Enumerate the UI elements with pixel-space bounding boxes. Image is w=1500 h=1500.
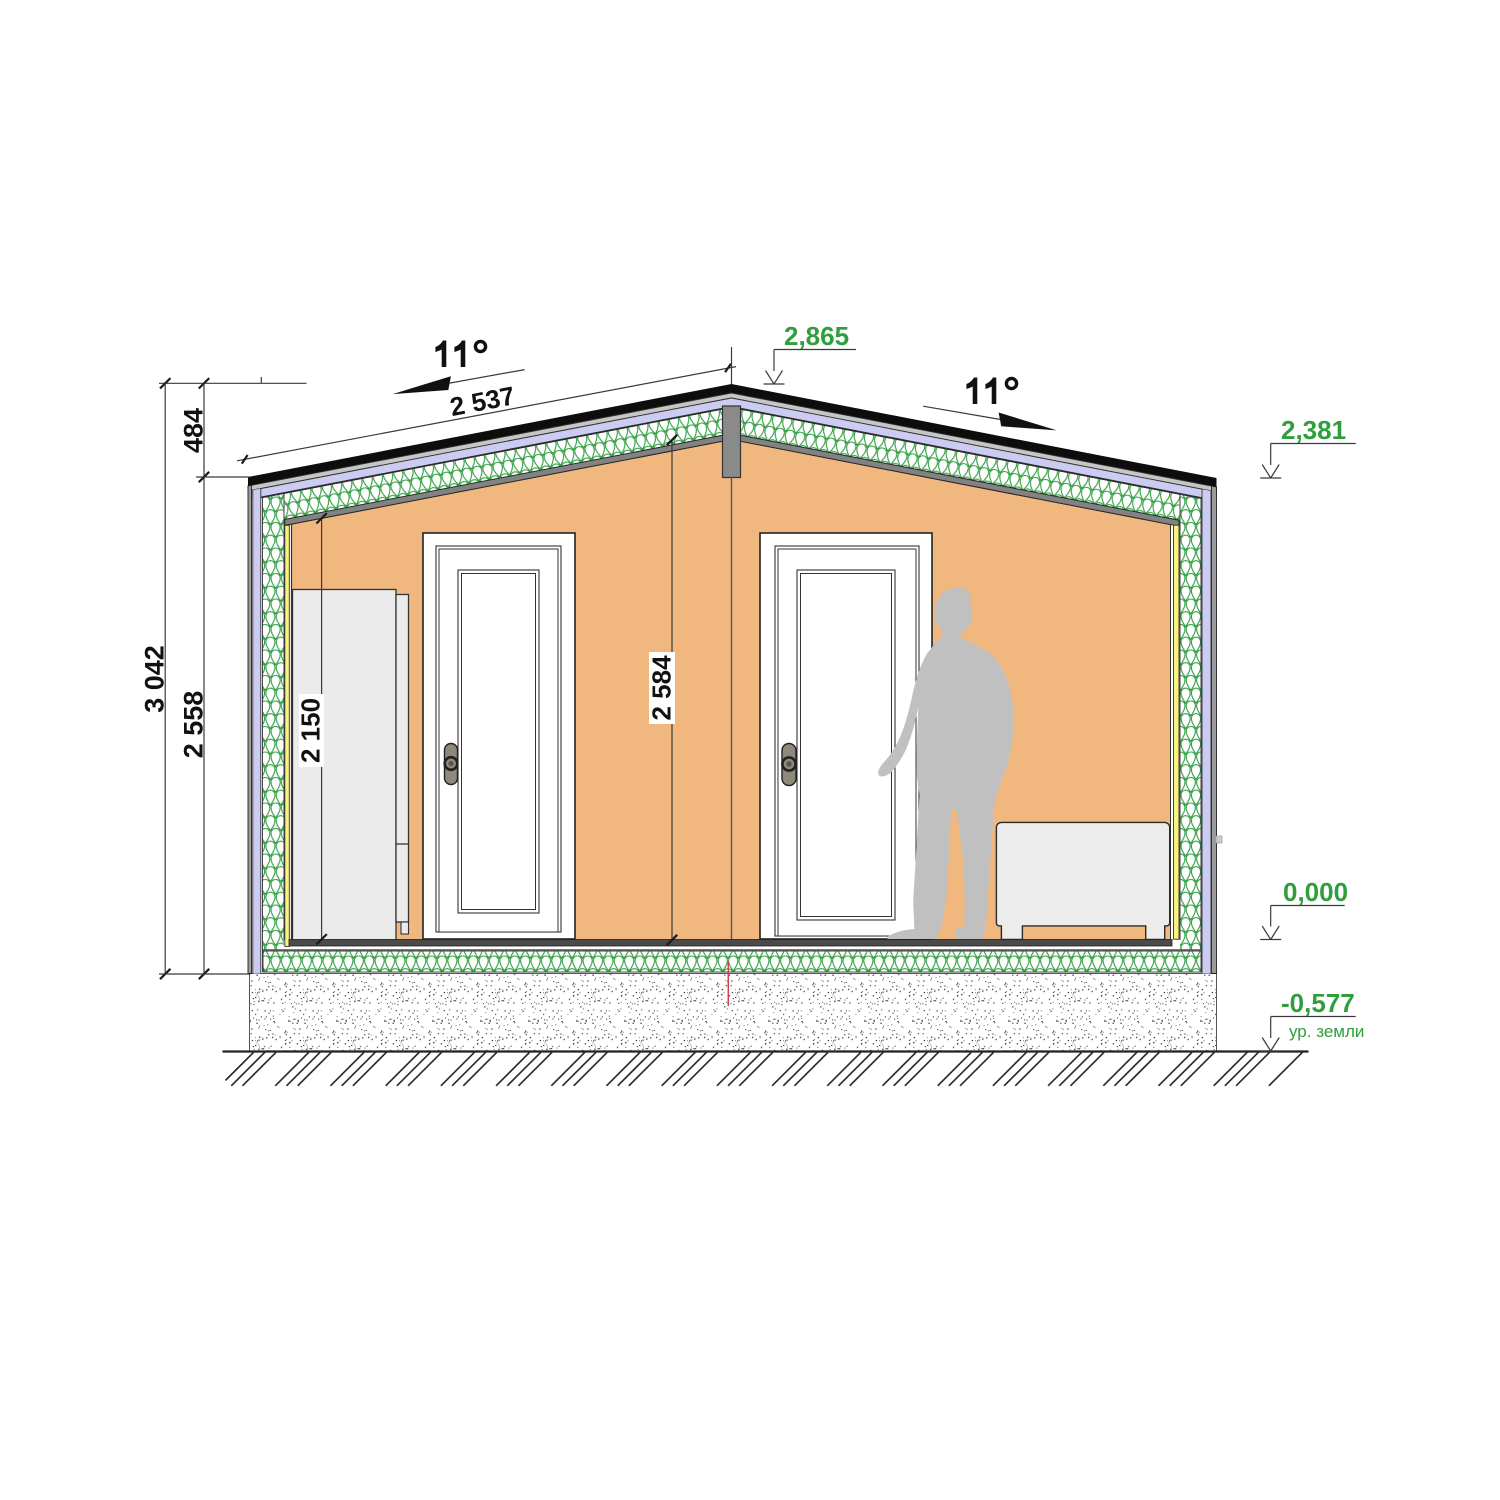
svg-text:484: 484: [179, 408, 209, 453]
svg-text:2 150: 2 150: [296, 698, 326, 763]
svg-text:2,381: 2,381: [1281, 415, 1346, 445]
svg-text:0,000: 0,000: [1283, 877, 1348, 907]
svg-text:3 042: 3 042: [140, 645, 170, 713]
svg-text:2,865: 2,865: [784, 321, 849, 351]
svg-text:2 584: 2 584: [647, 655, 677, 721]
svg-text:-0,577: -0,577: [1281, 988, 1355, 1018]
svg-text:ур. земли: ур. земли: [1289, 1022, 1364, 1041]
svg-text:2 558: 2 558: [179, 691, 209, 759]
